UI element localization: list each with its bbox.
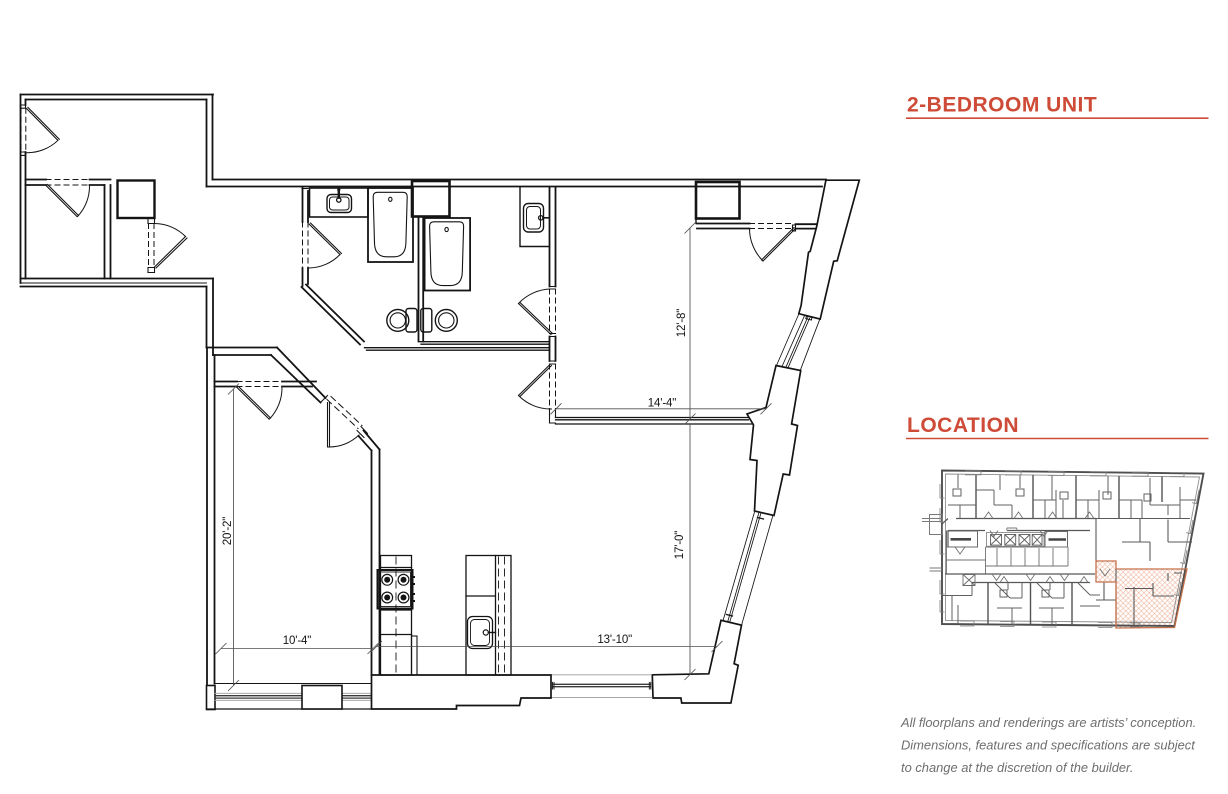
svg-text:17'-0": 17'-0" <box>674 531 686 559</box>
svg-text:Dimensions, features and speci: Dimensions, features and specifications … <box>901 738 1196 753</box>
svg-text:10'-4": 10'-4" <box>283 635 311 647</box>
svg-text:to change at the discretion of: to change at the discretion of the build… <box>901 760 1133 775</box>
svg-text:2-BEDROOM UNIT: 2-BEDROOM UNIT <box>907 94 1097 117</box>
svg-text:All floorplans and renderings: All floorplans and renderings are artist… <box>900 715 1196 730</box>
svg-text:13'-10": 13'-10" <box>597 634 632 646</box>
svg-text:14'-4": 14'-4" <box>648 397 676 409</box>
svg-text:20'-2": 20'-2" <box>222 517 234 545</box>
svg-text:LOCATION: LOCATION <box>907 414 1019 437</box>
svg-text:12'-8": 12'-8" <box>676 309 688 337</box>
